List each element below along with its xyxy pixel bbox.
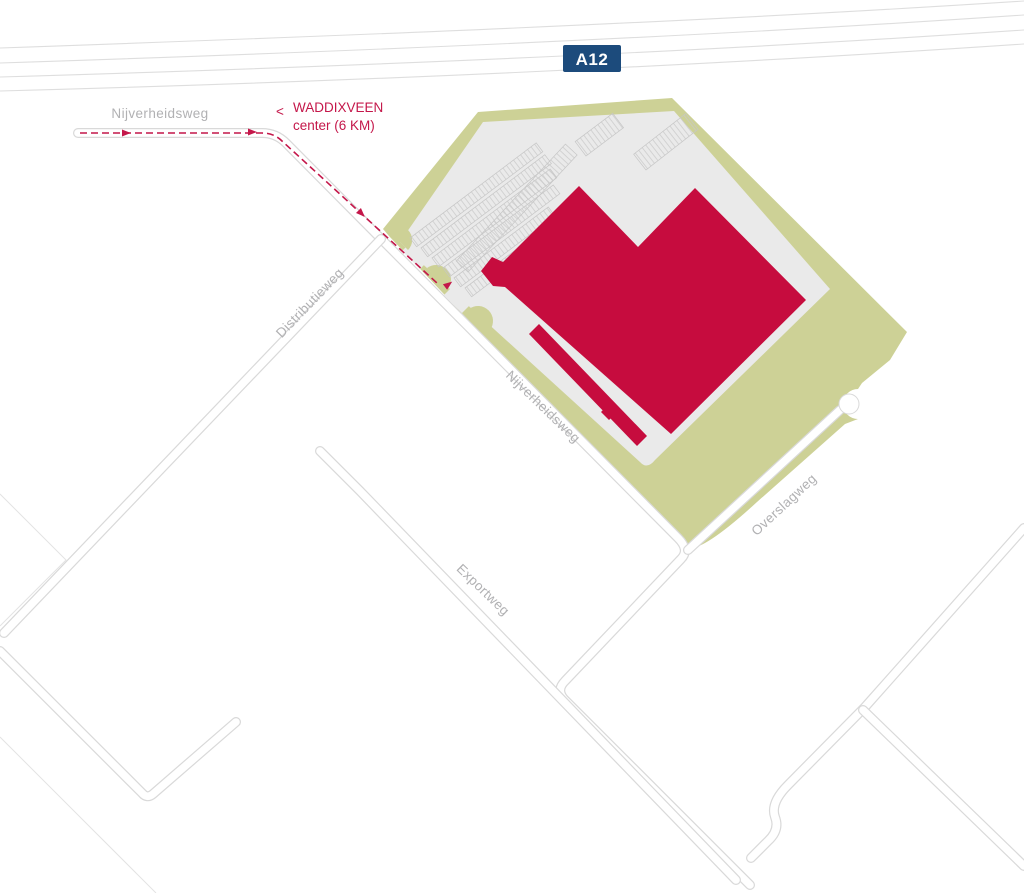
label-distributieweg: Distributieweg xyxy=(273,265,347,340)
destination-line2: center (6 KM) xyxy=(293,118,375,133)
label-exportweg: Exportweg xyxy=(454,561,513,619)
highway-line-4 xyxy=(0,44,1024,91)
road-southeast-branch xyxy=(863,710,1024,866)
route-line xyxy=(80,133,437,283)
map-canvas: A12 Nijverheidsweg Distributieweg Nijver… xyxy=(0,0,1024,893)
parcel-line-bottom xyxy=(0,737,156,893)
highway-badge-label: A12 xyxy=(576,50,609,69)
destination-line1: WADDIXVEEN xyxy=(293,100,383,115)
site-route-map: A12 Nijverheidsweg Distributieweg Nijver… xyxy=(0,0,1024,893)
label-nijverheidsweg-west: Nijverheidsweg xyxy=(111,106,208,121)
route-to-waddixveen xyxy=(80,129,454,290)
highway-a12: A12 xyxy=(0,1,1024,91)
destination-note: < WADDIXVEEN center (6 KM) xyxy=(276,100,383,133)
road-southwest-casing xyxy=(0,651,236,796)
overslagweg-turning-head xyxy=(839,394,859,414)
destination-arrow-icon: < xyxy=(276,104,284,119)
road-southeast xyxy=(751,528,1024,858)
highway-line-2 xyxy=(0,15,1024,63)
